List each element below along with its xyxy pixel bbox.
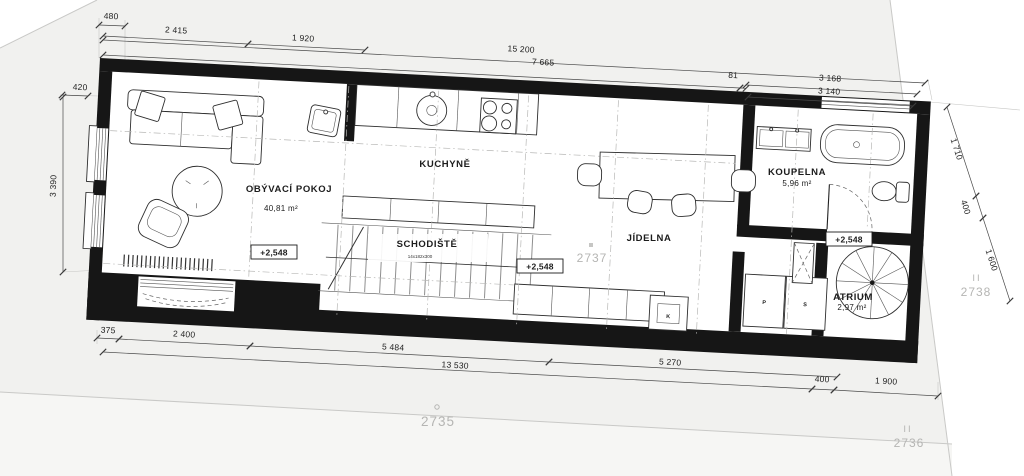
svg-text:3 140: 3 140 [818,85,841,96]
label-bath-area: 5,96 m² [782,179,811,188]
svg-text:15 200: 15 200 [507,43,535,54]
svg-text:1 600: 1 600 [984,248,1000,272]
svg-text:7 665: 7 665 [532,56,555,67]
label-atrium: ATRIUM [833,292,873,303]
label-stairs: SCHODIŠTĚ [397,238,458,250]
label-dining: JÍDELNA [627,233,672,244]
level-marker-living: +2,548 [251,245,297,259]
label-stairs-note: 14x182x300 [408,254,433,259]
chair-right [731,170,756,193]
dim-right-1710: 1 710 [944,104,979,199]
svg-text:480: 480 [104,11,119,22]
svg-text:+2,548: +2,548 [260,248,288,258]
building: K [79,58,931,364]
chair-left [577,163,602,186]
svg-text:3 390: 3 390 [48,175,59,198]
svg-text:400: 400 [959,198,973,215]
window-west-2 [83,192,105,249]
svg-text:1 900: 1 900 [875,375,898,386]
label-bath: KOUPELNA [768,167,826,178]
parcel-2736-mark: II [903,424,912,435]
parcel-2736: 2736 [894,436,925,450]
svg-text:5 270: 5 270 [659,356,682,367]
k-box [649,295,689,331]
bay-window-south [137,276,235,311]
parcel-2737: 2737 [577,251,608,265]
svg-text:2 415: 2 415 [165,24,188,35]
floor-plan-svg: K [0,0,1024,476]
toilet [872,181,910,203]
svg-text:1 920: 1 920 [292,32,315,43]
svg-text:5 484: 5 484 [382,341,405,352]
cooktop [480,98,518,134]
label-living: OBÝVACÍ POKOJ [246,183,332,195]
label-atrium-area: 2,97 m² [837,303,866,312]
svg-text:2 400: 2 400 [173,328,196,339]
svg-text:+2,548: +2,548 [526,262,554,272]
svg-text:400: 400 [815,374,830,385]
level-marker-atrium: +2,548 [826,232,872,246]
dim-right-400: 400 [959,193,986,221]
parcel-2735: 2735 [421,414,455,429]
svg-text:81: 81 [728,70,738,81]
parcel-point-2737 [589,243,593,247]
wall-sink [307,104,342,137]
hall-cabinet [792,243,814,284]
k-box-label: K [666,314,670,320]
chair-front-1 [626,189,653,215]
svg-text:1 710: 1 710 [949,137,965,161]
closet-p-label: P [762,300,766,306]
floor-plan-page: K [0,0,1024,476]
bathtub [820,124,906,166]
svg-text:420: 420 [73,82,88,93]
chair-front-2 [671,193,697,217]
label-living-area: 40,81 m² [264,204,298,213]
window-west-1 [87,126,109,183]
parcel-2738-mark: II [972,273,981,284]
closet-s-label: S [803,302,807,308]
parcel-2738: 2738 [961,285,992,299]
svg-text:375: 375 [101,325,116,336]
svg-text:3 168: 3 168 [819,72,842,83]
label-kitchen: KUCHYNĚ [419,158,470,170]
level-marker-stairs: +2,548 [517,259,563,273]
svg-text:13 530: 13 530 [441,359,469,370]
svg-text:+2,548: +2,548 [835,235,863,245]
washbasin [756,126,811,151]
